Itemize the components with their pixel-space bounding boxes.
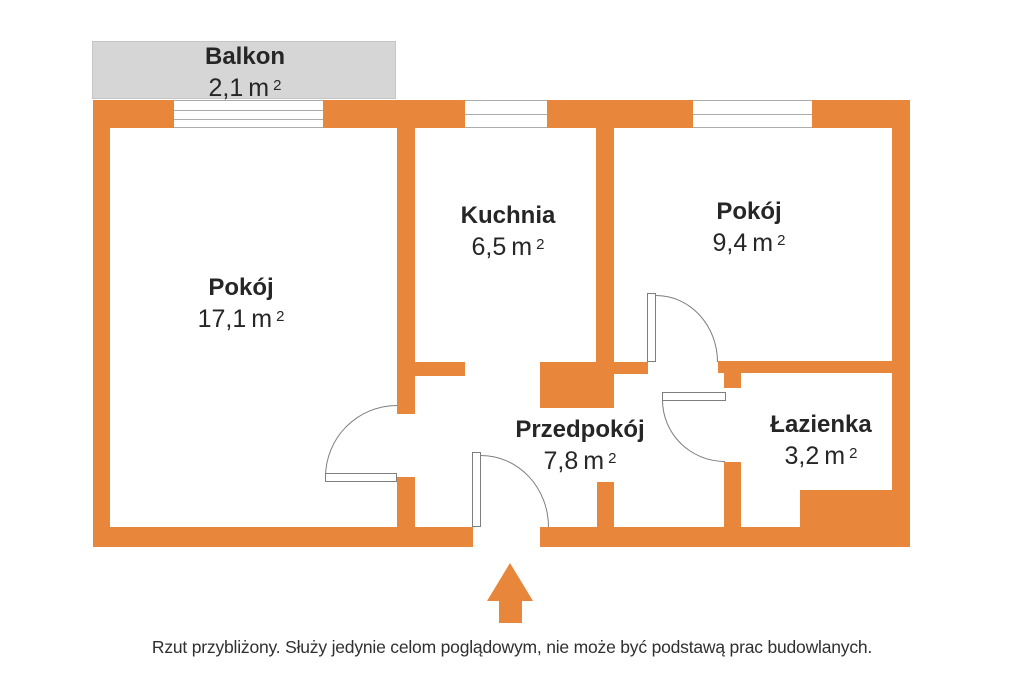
area-unit: m <box>752 229 773 257</box>
door-arc-pokoj-2 <box>656 295 718 362</box>
window-mullion <box>174 110 323 111</box>
room-label-pokoj-1: Pokój 17,1 m2 <box>198 274 285 334</box>
room-name: Przedpokój <box>515 416 644 444</box>
wall-bottom-left <box>93 527 473 547</box>
disclaimer-caption: Rzut przybliżony. Służy jedynie celom po… <box>0 637 1024 658</box>
area-sup: 2 <box>536 236 544 253</box>
area-value: 7,8 <box>544 447 579 475</box>
room-area: 17,1 m2 <box>198 302 285 334</box>
area-sup: 2 <box>777 232 785 249</box>
room-name: Łazienka <box>770 411 871 439</box>
room-label-przedpokoj: Przedpokój 7,8 m2 <box>515 416 644 476</box>
wall-block-kuchnia-przedpokoj <box>540 362 614 408</box>
room-label-balkon: Balkon 2,1 m2 <box>205 43 285 103</box>
door-leaf-pokoj-2 <box>647 293 656 362</box>
window-mullion <box>465 114 547 115</box>
room-area: 6,5 m2 <box>461 230 556 262</box>
wall-przedpokoj-lazienka-upper <box>724 361 741 388</box>
wall-przedpokoj-north <box>614 362 648 374</box>
room-area: 2,1 m2 <box>205 71 285 103</box>
area-sup: 2 <box>276 308 284 325</box>
wall-przedpokoj-south-stub <box>597 482 614 527</box>
door-arc-lazienka <box>662 400 725 462</box>
door-arc-pokoj-1 <box>325 405 397 477</box>
door-leaf-lazienka <box>662 392 726 401</box>
room-name: Kuchnia <box>461 202 556 230</box>
area-unit: m <box>248 74 269 102</box>
area-value: 2,1 <box>209 74 244 102</box>
wall-kuchnia-south <box>397 362 465 376</box>
wall-przedpokoj-lazienka-lower <box>724 462 741 527</box>
room-area: 9,4 m2 <box>713 226 786 258</box>
room-label-lazienka: Łazienka 3,2 m2 <box>770 411 871 471</box>
area-unit: m <box>824 442 845 470</box>
area-unit: m <box>583 447 604 475</box>
area-sup: 2 <box>608 450 616 467</box>
window-mullion <box>693 114 812 115</box>
window-kuchnia <box>465 100 547 128</box>
room-name: Pokój <box>713 198 786 226</box>
area-value: 17,1 <box>198 305 247 333</box>
room-label-kuchnia: Kuchnia 6,5 m2 <box>461 202 556 262</box>
wall-top-segment-3 <box>547 100 693 128</box>
room-area: 3,2 m2 <box>770 439 871 471</box>
area-value: 6,5 <box>472 233 507 261</box>
area-value: 3,2 <box>785 442 820 470</box>
window-pokoj-1 <box>174 100 323 128</box>
entrance-arrow-stem <box>499 600 522 623</box>
window-mullion <box>174 119 323 120</box>
wall-pokoj1-przedpokoj-stub <box>397 477 415 527</box>
area-sup: 2 <box>273 77 281 94</box>
area-unit: m <box>251 305 272 333</box>
area-unit: m <box>511 233 532 261</box>
window-pokoj-2 <box>693 100 812 128</box>
wall-lazienka-notch <box>800 490 892 527</box>
wall-left <box>93 100 110 547</box>
wall-top-segment-2 <box>323 100 465 128</box>
room-area: 7,8 m2 <box>515 444 644 476</box>
wall-kuchnia-pokoj2 <box>596 128 614 362</box>
wall-right <box>892 100 910 547</box>
area-value: 9,4 <box>713 229 748 257</box>
floor-plan: Balkon 2,1 m2 Pokój 17,1 m2 Kuchnia 6,5 … <box>0 0 1024 682</box>
room-name: Balkon <box>205 43 285 71</box>
door-leaf-entrance <box>472 452 481 527</box>
entrance-arrow-head <box>487 563 533 601</box>
room-name: Pokój <box>198 274 285 302</box>
door-leaf-pokoj-1 <box>325 473 397 482</box>
wall-lazienka-north <box>718 361 892 373</box>
area-sup: 2 <box>849 445 857 462</box>
room-label-pokoj-2: Pokój 9,4 m2 <box>713 198 786 258</box>
wall-bottom-right <box>540 527 910 547</box>
